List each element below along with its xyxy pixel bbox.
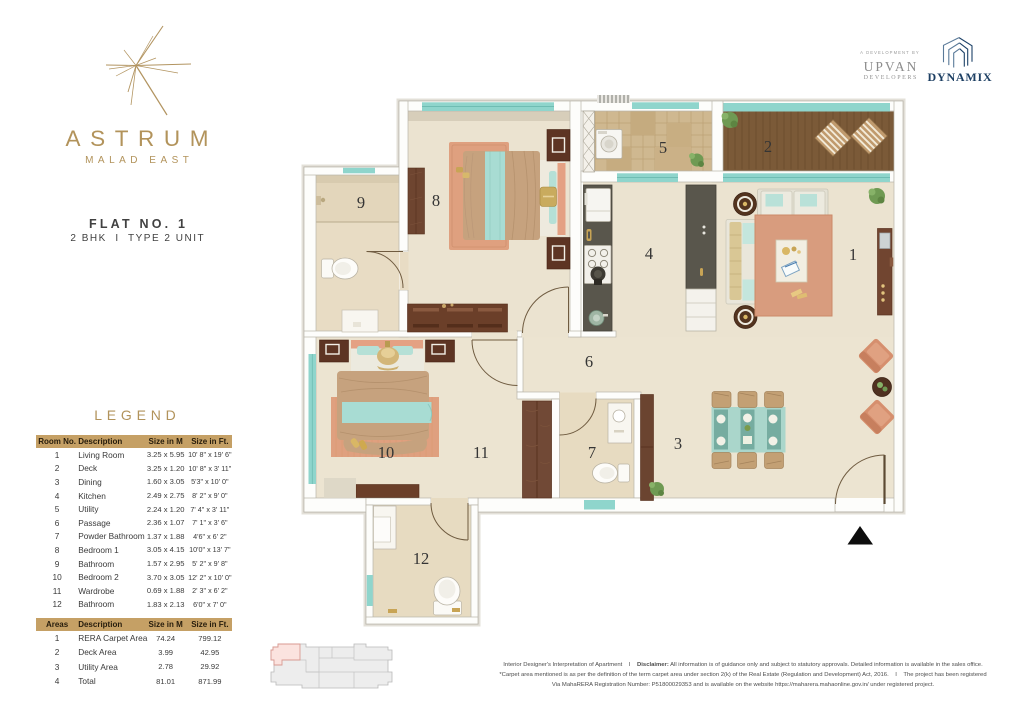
svg-text:6: 6 [585,352,593,371]
svg-text:7: 7 [588,443,596,462]
svg-text:10: 10 [378,443,395,462]
svg-text:4: 4 [645,244,653,263]
svg-text:1: 1 [849,245,857,264]
svg-text:12: 12 [413,549,430,568]
svg-text:9: 9 [357,193,365,212]
svg-text:2: 2 [764,137,772,156]
svg-text:3: 3 [674,434,682,453]
svg-text:5: 5 [659,138,667,157]
svg-text:11: 11 [473,443,489,462]
svg-text:8: 8 [432,191,440,210]
